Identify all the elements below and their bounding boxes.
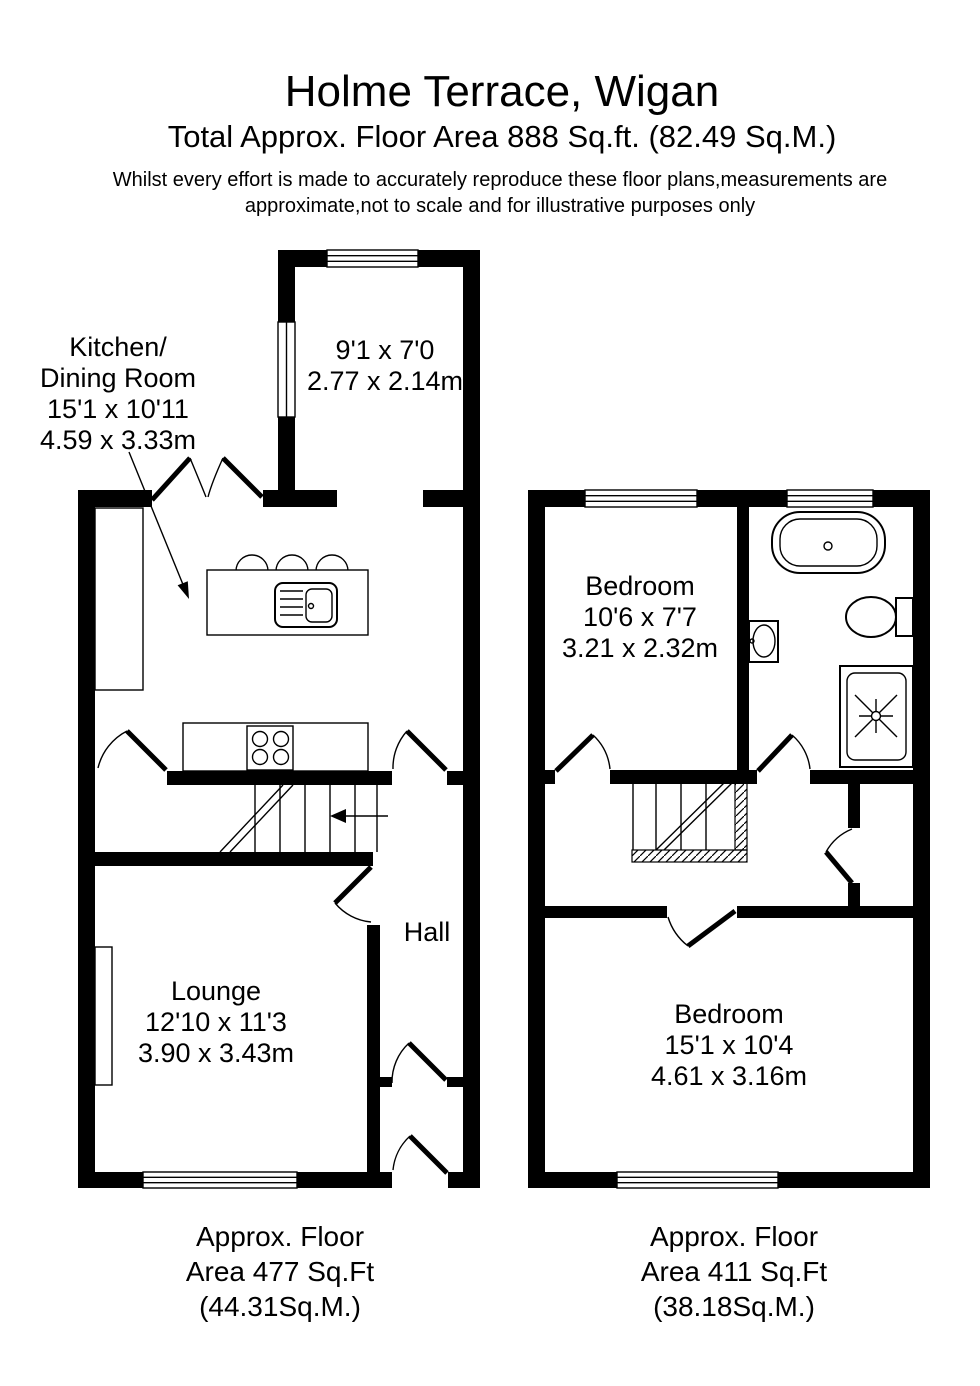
stool-icon — [276, 555, 308, 571]
stool-icon — [316, 555, 348, 571]
lounge-size-metric: 3.90 x 3.43m — [138, 1038, 294, 1068]
kitchen-label-line2: Dining Room — [40, 363, 196, 393]
disclaimer-line1: Whilst every effort is made to accuratel… — [113, 169, 887, 191]
window-icon — [787, 490, 873, 507]
stairs-icon — [220, 785, 388, 852]
kitchen-counter — [95, 508, 143, 690]
bedroom-back-size-metric: 4.61 x 3.16m — [651, 1061, 807, 1091]
ground-area-line3: (44.31Sq.M.) — [199, 1291, 361, 1322]
bathtub-icon — [772, 512, 885, 573]
door-icon — [393, 731, 446, 770]
front-door-icon — [393, 1136, 447, 1173]
bathroom-fixtures — [749, 512, 913, 767]
hob-icon — [183, 723, 368, 771]
basin-icon — [749, 621, 778, 662]
first-area-line3: (38.18Sq.M.) — [653, 1291, 815, 1322]
door-icon — [335, 867, 371, 922]
stairs-icon — [632, 782, 747, 862]
window-icon — [278, 322, 295, 417]
ground-area-line2: Area 477 Sq.Ft — [186, 1256, 375, 1287]
window-icon — [327, 250, 418, 267]
window-icon — [617, 1172, 778, 1188]
first-area-line2: Area 411 Sq.Ft — [641, 1256, 827, 1287]
window-icon — [585, 490, 697, 507]
window-icon — [143, 1172, 297, 1188]
bedroom-back-size-imperial: 15'1 x 10'4 — [665, 1030, 794, 1060]
cupboard-door-icon — [826, 829, 852, 883]
door-icon — [758, 735, 810, 771]
stairs-direction-arrow — [330, 809, 388, 823]
floorplan-canvas: Holme Terrace, Wigan Total Approx. Floor… — [0, 0, 980, 1386]
ground-area-line1: Approx. Floor — [196, 1221, 364, 1252]
labels-first: Bedroom 10'6 x 7'7 3.21 x 2.32m Bedroom … — [562, 571, 827, 1322]
rear-room-size-imperial: 9'1 x 7'0 — [336, 335, 435, 365]
disclaimer-line2: approximate,not to scale and for illustr… — [245, 195, 755, 217]
door-icon — [556, 735, 610, 771]
header: Holme Terrace, Wigan Total Approx. Floor… — [113, 67, 887, 217]
first-area-line1: Approx. Floor — [650, 1221, 818, 1252]
bedroom-back-label: Bedroom — [674, 999, 784, 1029]
stair-guard-hatch — [632, 850, 747, 862]
lounge-size-imperial: 12'10 x 11'3 — [145, 1007, 287, 1037]
ground-floor-plan: Kitchen/ Dining Room 15'1 x 10'11 4.59 x… — [40, 250, 480, 1322]
stair-guard-hatch — [735, 782, 747, 850]
shower-icon — [840, 666, 913, 767]
lounge-label: Lounge — [171, 976, 261, 1006]
first-floor-plan: Bedroom 10'6 x 7'7 3.21 x 2.32m Bedroom … — [528, 490, 930, 1322]
toilet-icon — [846, 597, 913, 637]
kitchen-size-metric: 4.59 x 3.33m — [40, 425, 196, 455]
total-floor-area: Total Approx. Floor Area 888 Sq.ft. (82.… — [168, 119, 837, 154]
french-doors-icon — [152, 458, 262, 500]
kitchen-label-line1: Kitchen/ — [69, 332, 167, 362]
hall-label: Hall — [404, 917, 451, 947]
door-icon — [98, 731, 166, 770]
bedroom-front-label: Bedroom — [585, 571, 695, 601]
door-icon — [392, 1043, 446, 1083]
bedroom-front-size-imperial: 10'6 x 7'7 — [583, 602, 697, 632]
stool-icon — [236, 555, 268, 571]
lounge-alcove — [95, 947, 112, 1085]
rear-room-size-metric: 2.77 x 2.14m — [307, 366, 463, 396]
bedroom-front-size-metric: 3.21 x 2.32m — [562, 633, 718, 663]
page-title: Holme Terrace, Wigan — [285, 67, 719, 116]
door-icon — [668, 911, 735, 946]
sink-icon — [275, 583, 337, 627]
kitchen-size-imperial: 15'1 x 10'11 — [47, 394, 189, 424]
